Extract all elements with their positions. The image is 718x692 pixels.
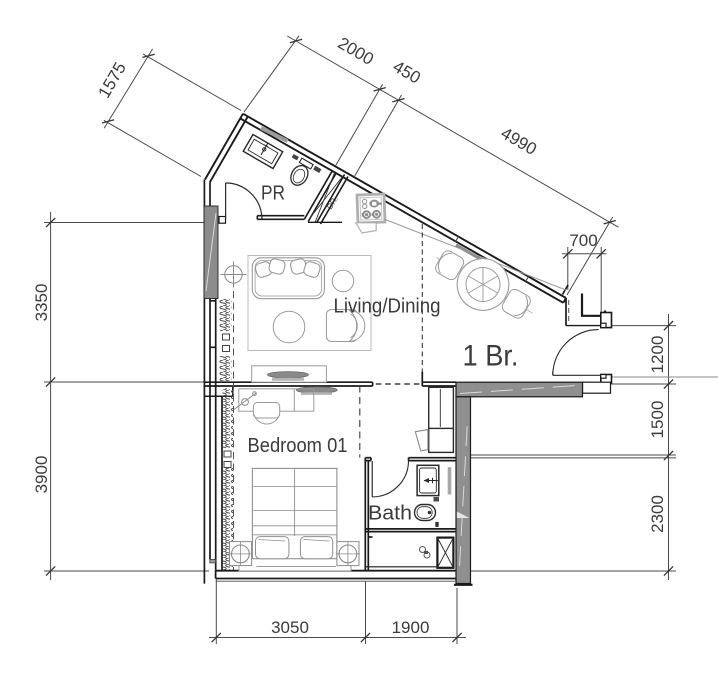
svg-text:1500: 1500 — [648, 401, 667, 439]
svg-text:3050: 3050 — [271, 618, 309, 637]
svg-text:PR: PR — [261, 182, 285, 205]
svg-text:Bedroom 01: Bedroom 01 — [248, 435, 348, 457]
svg-text:3900: 3900 — [32, 456, 51, 494]
svg-text:3350: 3350 — [32, 284, 51, 322]
svg-text:2300: 2300 — [648, 495, 667, 533]
svg-text:1900: 1900 — [392, 618, 430, 637]
svg-text:1200: 1200 — [648, 336, 667, 374]
svg-text:Living/Dining: Living/Dining — [334, 296, 441, 318]
svg-text:1 Br.: 1 Br. — [463, 340, 519, 373]
svg-text:700: 700 — [569, 231, 597, 250]
svg-text:Bath: Bath — [368, 503, 412, 525]
